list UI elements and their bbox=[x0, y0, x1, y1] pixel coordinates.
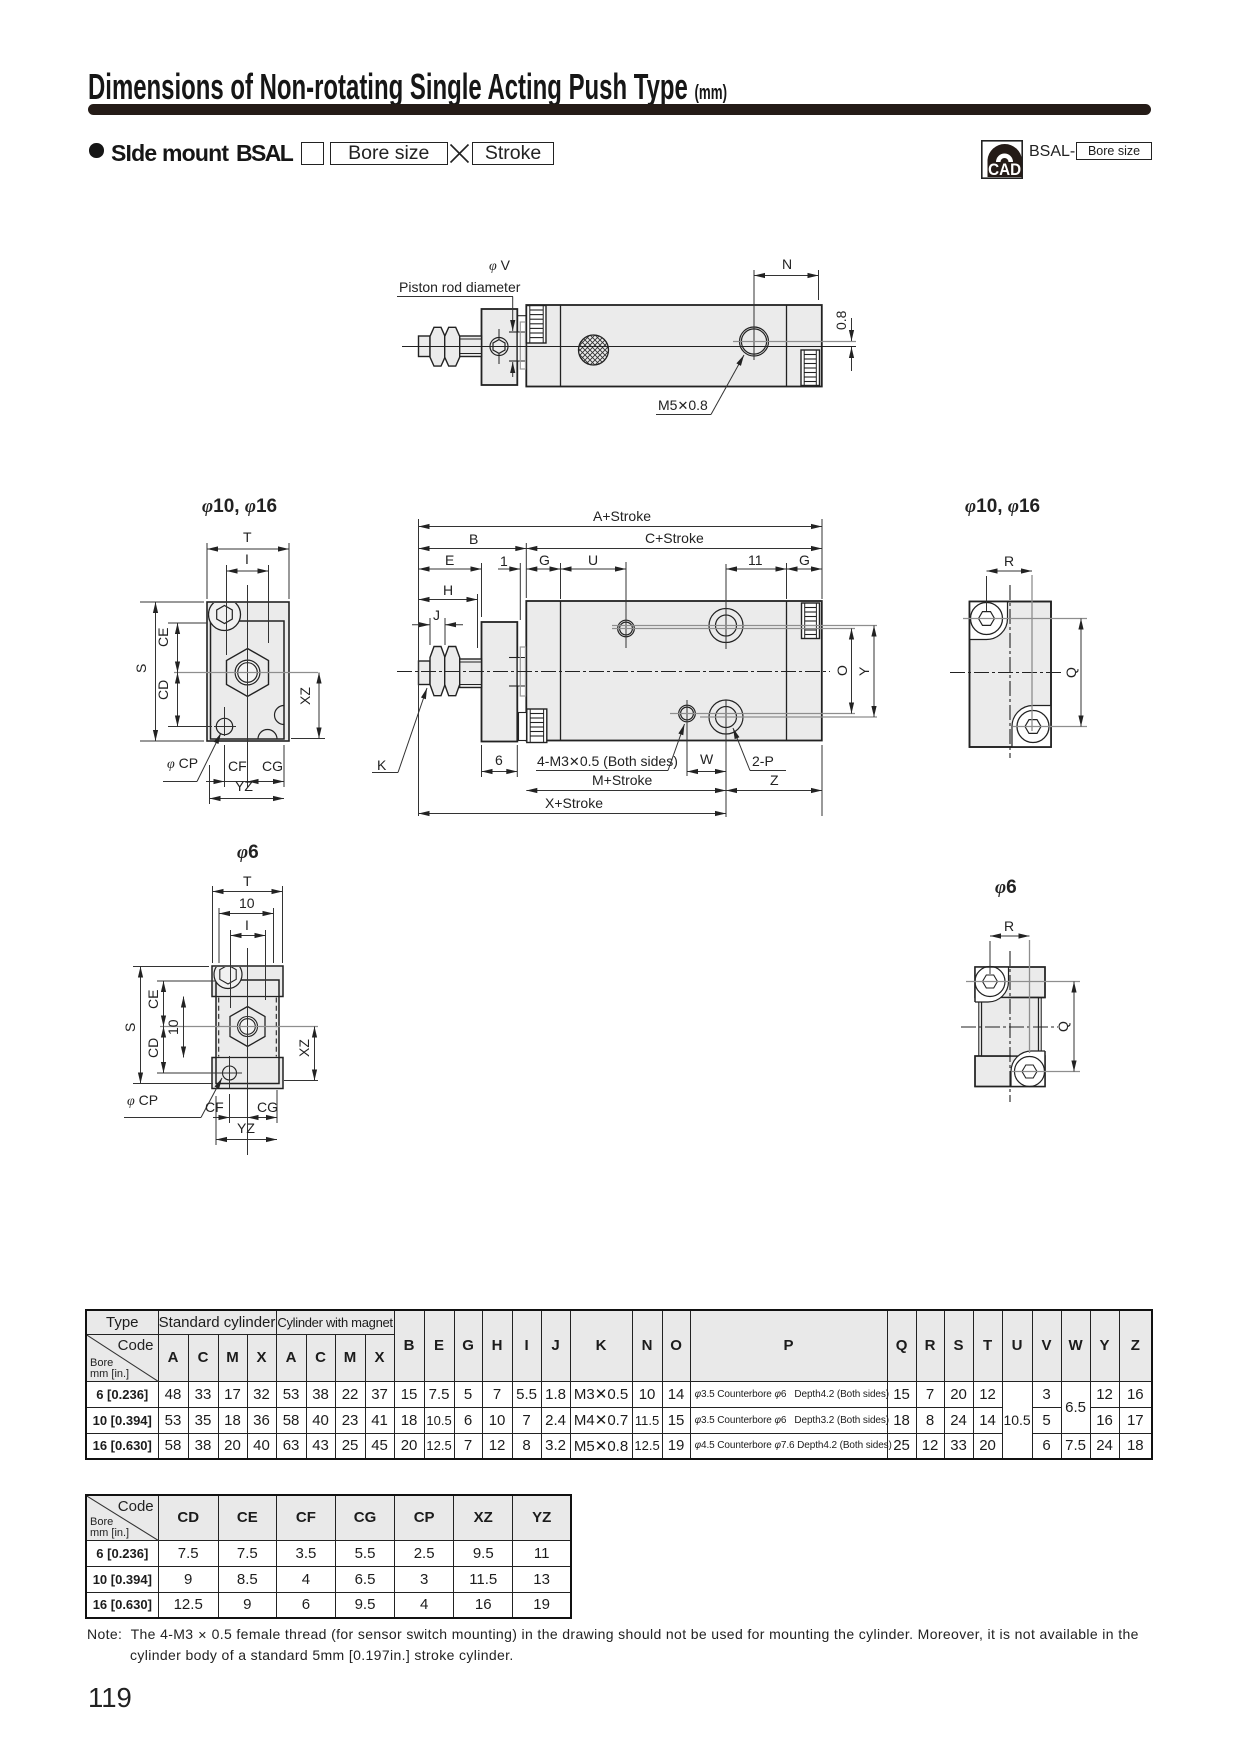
svg-text:T: T bbox=[243, 873, 252, 889]
svg-text:11: 11 bbox=[748, 552, 763, 568]
svg-text:X+Stroke: X+Stroke bbox=[545, 795, 603, 811]
svg-text:φ V: φ V bbox=[489, 257, 511, 274]
svg-text:φ6: φ6 bbox=[237, 842, 259, 863]
svg-text:CF: CF bbox=[228, 758, 247, 774]
svg-text:R: R bbox=[1004, 553, 1014, 569]
svg-text:XZ: XZ bbox=[296, 1039, 312, 1057]
svg-text:1: 1 bbox=[500, 553, 508, 569]
svg-text:YZ: YZ bbox=[235, 778, 253, 794]
svg-text:Q: Q bbox=[1063, 667, 1079, 678]
svg-text:O: O bbox=[834, 665, 850, 676]
svg-text:M5✕0.8: M5✕0.8 bbox=[658, 397, 708, 413]
svg-text:0.8: 0.8 bbox=[833, 310, 849, 330]
svg-text:CE: CE bbox=[155, 628, 171, 647]
svg-text:I: I bbox=[245, 551, 249, 567]
svg-text:S: S bbox=[133, 664, 149, 673]
svg-text:M+Stroke: M+Stroke bbox=[592, 772, 653, 788]
svg-text:YZ: YZ bbox=[237, 1120, 255, 1136]
svg-text:6: 6 bbox=[495, 752, 503, 768]
svg-text:E: E bbox=[445, 552, 454, 568]
svg-text:S: S bbox=[122, 1023, 138, 1032]
svg-text:Y: Y bbox=[856, 666, 872, 676]
svg-text:G: G bbox=[799, 552, 810, 568]
svg-text:φ CP: φ CP bbox=[127, 1092, 158, 1109]
svg-text:B: B bbox=[469, 531, 478, 547]
svg-text:CG: CG bbox=[262, 758, 283, 774]
svg-text:G: G bbox=[539, 552, 550, 568]
svg-text:CD: CD bbox=[155, 680, 171, 700]
svg-text:φ10, φ16: φ10, φ16 bbox=[202, 496, 277, 517]
svg-text:CD: CD bbox=[145, 1038, 161, 1058]
svg-text:φ10, φ16: φ10, φ16 bbox=[965, 496, 1040, 517]
svg-text:φ CP: φ CP bbox=[167, 755, 198, 772]
svg-text:CF: CF bbox=[205, 1099, 224, 1115]
svg-text:A+Stroke: A+Stroke bbox=[593, 508, 651, 524]
svg-text:10: 10 bbox=[165, 1019, 181, 1035]
svg-text:Z: Z bbox=[770, 772, 779, 788]
svg-text:J: J bbox=[433, 607, 440, 623]
svg-text:C+Stroke: C+Stroke bbox=[645, 530, 704, 546]
svg-text:K: K bbox=[377, 757, 387, 773]
svg-text:T: T bbox=[243, 529, 252, 545]
svg-text:10: 10 bbox=[239, 895, 255, 911]
svg-text:Piston rod diameter: Piston rod diameter bbox=[399, 279, 521, 295]
svg-text:N: N bbox=[782, 256, 792, 272]
svg-text:R: R bbox=[1004, 918, 1014, 934]
svg-text:φ6: φ6 bbox=[995, 877, 1017, 898]
svg-text:2-P: 2-P bbox=[752, 753, 774, 769]
svg-text:CG: CG bbox=[257, 1099, 278, 1115]
svg-text:I: I bbox=[245, 917, 249, 933]
svg-text:W: W bbox=[700, 751, 714, 767]
svg-text:XZ: XZ bbox=[297, 687, 313, 705]
svg-text:H: H bbox=[443, 582, 453, 598]
svg-text:CE: CE bbox=[145, 990, 161, 1009]
svg-text:4-M3✕0.5 (Both sides): 4-M3✕0.5 (Both sides) bbox=[537, 753, 678, 769]
svg-text:Q: Q bbox=[1055, 1021, 1071, 1032]
svg-text:U: U bbox=[588, 552, 598, 568]
